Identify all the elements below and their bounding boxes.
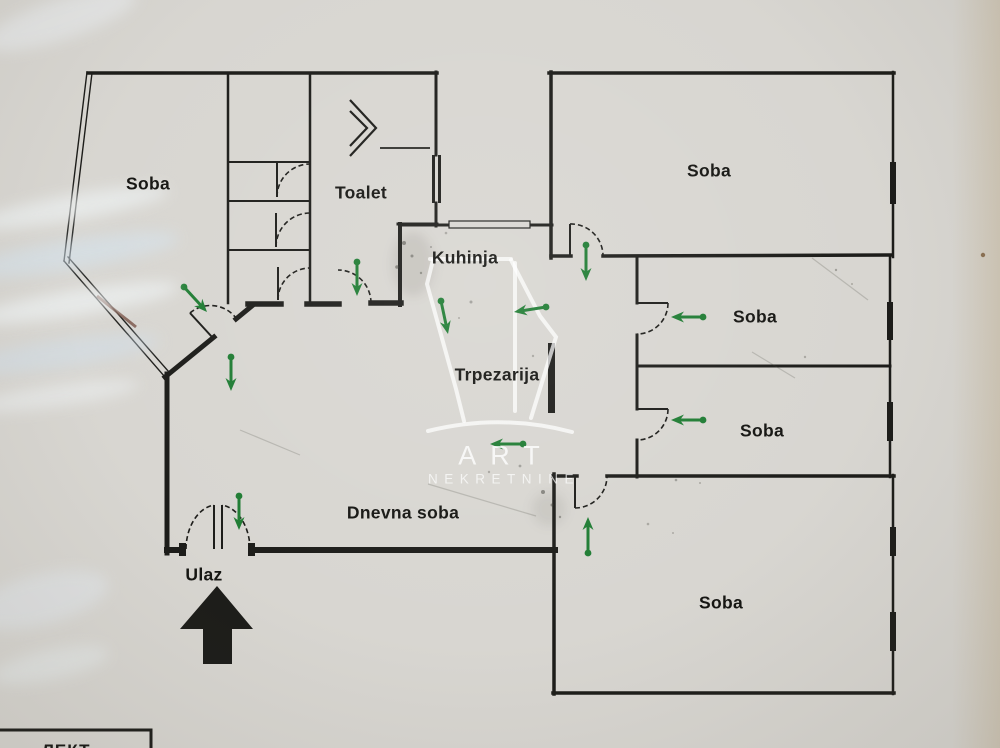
direction-arrow-down-right xyxy=(181,284,207,312)
direction-arrow-down xyxy=(581,242,592,281)
room-label-toalet: Toalet xyxy=(335,183,387,204)
room-label-soba-middle-lower: Soba xyxy=(740,421,784,442)
room-label-soba-top-right: Soba xyxy=(687,161,731,182)
floor-plan-photo: SobaToaletKuhinjaTrpezarijaDnevna sobaSo… xyxy=(0,0,1000,748)
door-arcs xyxy=(186,163,668,549)
direction-arrow-left xyxy=(671,312,706,323)
legend-partial-text: ЛЕКТ xyxy=(42,741,90,748)
entrance-arrow xyxy=(180,586,253,664)
room-label-ulaz: Ulaz xyxy=(185,565,222,586)
room-label-kuhinja: Kuhinja xyxy=(432,248,498,269)
shower-symbol xyxy=(350,100,430,156)
room-label-trpezarija: Trpezarija xyxy=(455,365,540,386)
direction-arrow-down xyxy=(226,354,237,391)
direction-arrow-left xyxy=(490,439,526,450)
room-label-soba-middle-upper: Soba xyxy=(733,307,777,328)
direction-arrow-left xyxy=(671,415,706,426)
paper-speckles xyxy=(240,232,985,534)
direction-arrow-up xyxy=(583,517,594,556)
direction-arrow-down xyxy=(352,259,363,296)
direction-arrow-left xyxy=(514,304,549,316)
room-label-soba-bottom-right: Soba xyxy=(699,593,743,614)
room-label-dnevna-soba: Dnevna soba xyxy=(347,503,459,524)
room-label-soba-top-left: Soba xyxy=(126,174,170,195)
